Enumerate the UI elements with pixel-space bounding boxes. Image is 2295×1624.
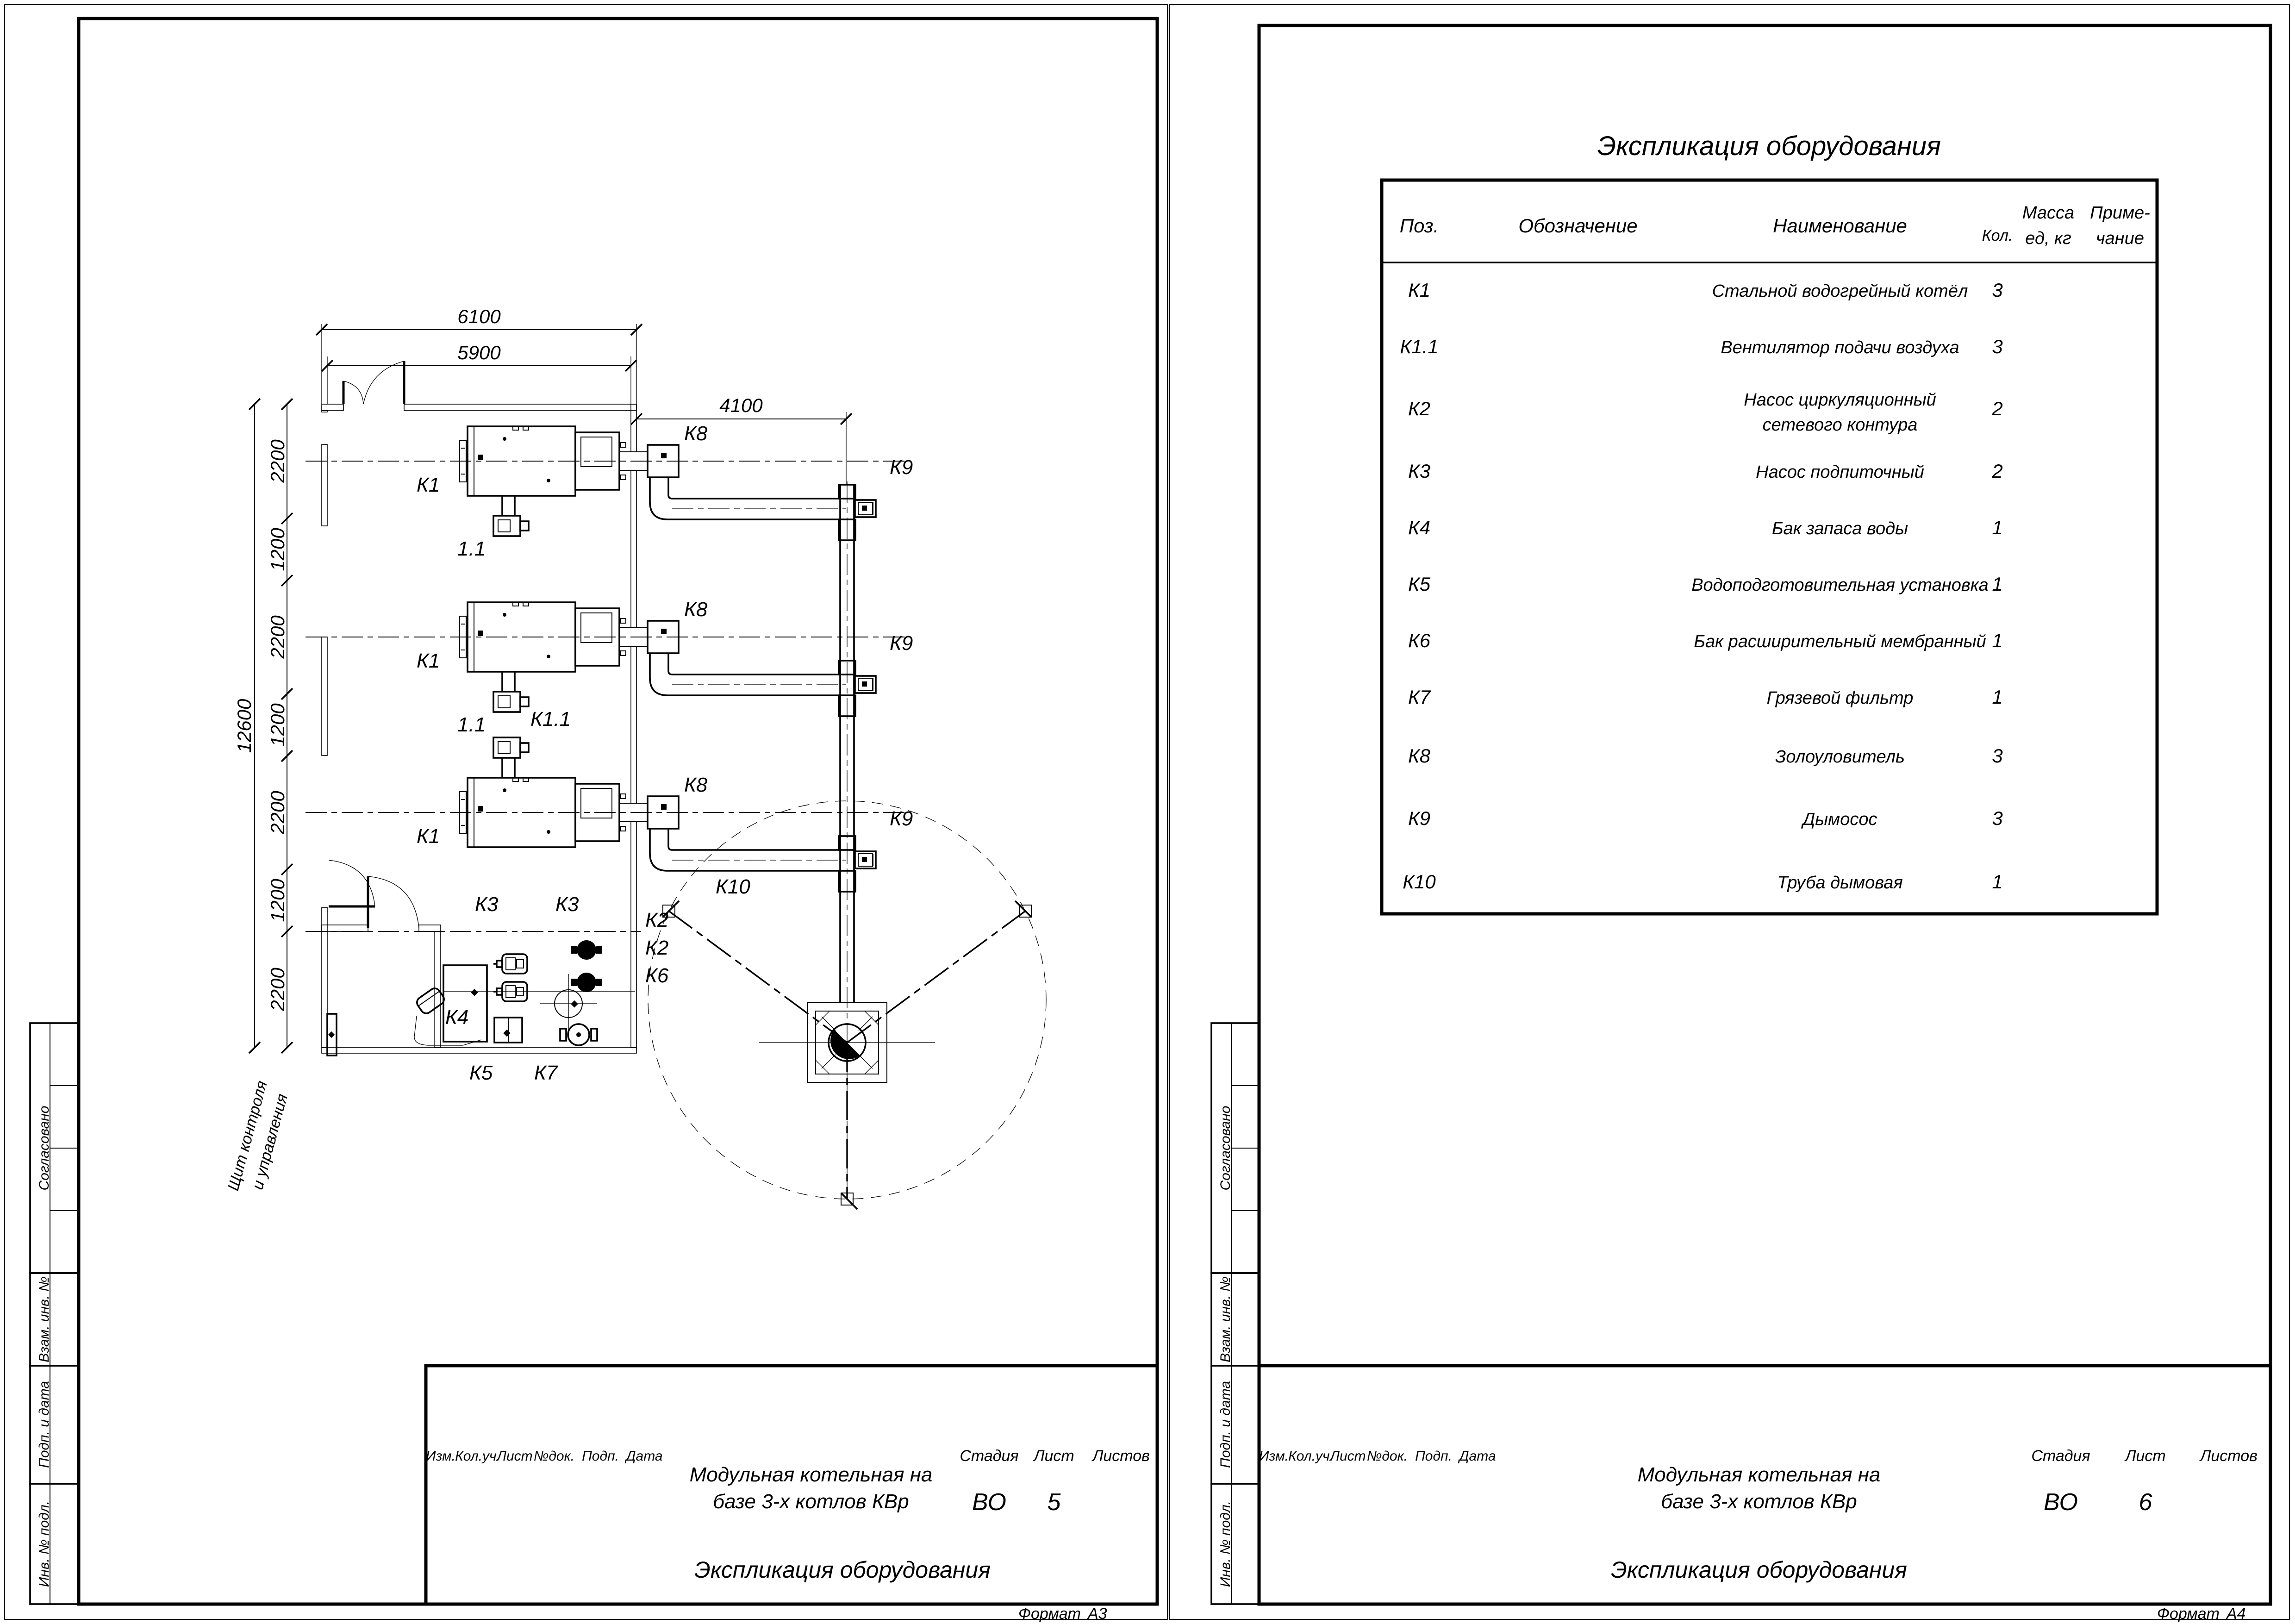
cell-qty: 3 — [1992, 336, 2002, 357]
sidebar-podp-label-r: Подп. и дата — [1218, 1381, 1233, 1468]
label-k9-3: К9 — [890, 807, 913, 830]
table-row-k1-1: К1.1 Вентилятор подачи воздуха 3 — [1400, 336, 2002, 357]
dim-4100: 4100 — [719, 394, 763, 416]
sheet-label-right: Лист — [2124, 1447, 2166, 1465]
cell-qty: 1 — [1992, 573, 2002, 595]
table-row-k4: К4 Бак запаса воды 1 — [1408, 517, 2003, 538]
format-label-right: Формат — [2157, 1605, 2220, 1623]
label-k4: К4 — [445, 1006, 468, 1029]
dim-c2: 2200 — [267, 615, 288, 659]
cell-qty: 1 — [1992, 871, 2002, 893]
sidebar-approved-label-r: Согласовано — [1218, 1106, 1233, 1191]
table-row-k9: К9 Дымосос 3 — [1408, 807, 2003, 829]
label-k1-1: К1 — [417, 474, 440, 496]
col-header-qty: Кол. — [1982, 227, 2013, 244]
dim-5900: 5900 — [457, 342, 501, 363]
cell-pos: К1.1 — [1400, 336, 1438, 357]
rev-podp-right: Подп. — [1415, 1449, 1452, 1464]
cell-pos: К10 — [1403, 871, 1436, 893]
dim-12600: 12600 — [233, 699, 255, 753]
dim-top: 6100 5900 4100 — [316, 306, 852, 484]
sidebar-right-sheet: Согласовано Взам. инв. № Подп. и дата Ин… — [1211, 1023, 1259, 1604]
label-k8-1: К8 — [684, 422, 708, 445]
sidebar-left-sheet: Согласовано Взам. инв. № Подп. и дата Ин… — [30, 1023, 78, 1604]
cell-name: Грязевой фильтр — [1767, 688, 1914, 708]
aux-equipment — [327, 940, 602, 1056]
sink — [415, 986, 446, 1015]
rev-data-right: Дата — [1458, 1449, 1496, 1464]
sheet-a3-plan: Согласовано Взам. инв. № Подп. и дата Ин… — [5, 5, 1167, 1623]
cell-name: Вентилятор подачи воздуха — [1721, 338, 1959, 357]
label-k9-2: К9 — [890, 632, 913, 655]
cell-name-2: сетевого контура — [1763, 415, 1918, 435]
label-k2-2: К2 — [645, 937, 668, 959]
pump-k2-1 — [571, 940, 602, 960]
cell-name: Дымосос — [1801, 810, 1877, 829]
col-header-mass-2: ед, кг — [2025, 229, 2071, 248]
cell-name: Насос циркуляционный — [1744, 390, 1936, 410]
cell-qty: 3 — [1992, 807, 2002, 829]
cell-pos: К3 — [1408, 460, 1430, 482]
cell-name: Насос подпиточный — [1756, 462, 1924, 482]
sidebar-vzam-label-r: Взам. инв. № — [1218, 1276, 1233, 1362]
cell-name: Водоподготовительная установка — [1691, 575, 1989, 595]
floor-plan: 6100 5900 4100 2200 1200 2200 1200 2200 — [225, 306, 1046, 1209]
dim-c0: 2200 — [267, 439, 288, 483]
rev-list-left: Лист — [496, 1449, 532, 1464]
sheet-number-right: 6 — [2139, 1489, 2152, 1516]
title-block-left: Изм. Кол.уч. Лист №док. Подп. Дата Модул… — [426, 1366, 1157, 1623]
cell-qty: 1 — [1992, 517, 2002, 538]
rev-ndok-left: №док. — [534, 1449, 574, 1464]
sheet-label-left: Лист — [1033, 1447, 1074, 1465]
stage-label-left: Стадия — [960, 1447, 1018, 1465]
cell-qty: 2 — [1991, 398, 2002, 419]
table-row-k3: К3 Насос подпиточный 2 — [1408, 460, 2003, 482]
sidebar-approved-label: Согласовано — [37, 1106, 52, 1191]
doc-title-left: Экспликация оборудования — [694, 1557, 991, 1583]
cell-qty: 3 — [1992, 745, 2002, 767]
cell-pos: К8 — [1408, 745, 1431, 767]
cell-qty: 1 — [1992, 686, 2002, 708]
rev-data-left: Дата — [624, 1449, 662, 1464]
stage-value-right: ВО — [2044, 1489, 2078, 1516]
label-k2-1: К2 — [645, 909, 668, 931]
sheet-number-left: 5 — [1048, 1489, 1061, 1516]
filter-k7 — [560, 1024, 597, 1045]
stage-label-right: Стадия — [2031, 1447, 2090, 1465]
format-label-left: Формат — [1018, 1605, 1081, 1623]
label-k1-3: К1 — [417, 825, 440, 848]
cell-qty: 3 — [1992, 279, 2002, 301]
sidebar-inv-label-r: Инв. № подл. — [1218, 1501, 1233, 1587]
format-value-right: А4 — [2226, 1605, 2246, 1623]
dim-c3: 1200 — [267, 703, 288, 747]
dim-c1: 1200 — [267, 528, 288, 571]
label-k6: К6 — [645, 964, 669, 987]
cell-name: Бак запаса воды — [1772, 519, 1908, 538]
cell-qty: 1 — [1992, 630, 2002, 651]
cell-pos: К5 — [1408, 573, 1431, 595]
rev-izm-left: Изм. — [426, 1449, 455, 1464]
tank-k4 — [443, 965, 487, 1042]
cell-pos: К4 — [1408, 517, 1430, 538]
project-title-2-right: базе 3-х котлов КВр — [1661, 1490, 1857, 1513]
col-header-note-1: Приме- — [2090, 203, 2150, 223]
doors — [329, 361, 419, 928]
col-header-name: Наименование — [1773, 215, 1907, 237]
label-k8-2: К8 — [684, 598, 708, 621]
rev-koluch-right: Кол.уч. — [1288, 1449, 1334, 1464]
equipment-table: Экспликация оборудования Поз. Обозначени… — [1382, 131, 2157, 914]
table-row-k10: К10 Труба дымовая 1 — [1403, 871, 2002, 893]
cell-name: Труба дымовая — [1777, 873, 1902, 893]
rev-list-right: Лист — [1329, 1449, 1366, 1464]
label-k3-1: К3 — [475, 893, 499, 916]
cell-pos: К7 — [1408, 686, 1431, 708]
label-k8-3: К8 — [684, 774, 708, 796]
pump-k3-1 — [493, 954, 527, 974]
col-header-note-2: чание — [2096, 229, 2144, 248]
sheet-a4-table: Согласовано Взам. инв. № Подп. и дата Ин… — [1169, 5, 2289, 1623]
cell-pos: К2 — [1408, 398, 1430, 419]
sidebar-inv-label: Инв. № подл. — [37, 1501, 52, 1587]
label-k9-1: К9 — [890, 456, 913, 479]
format-value-left: А3 — [1087, 1605, 1107, 1623]
cell-pos: К6 — [1408, 630, 1431, 651]
table-row-k1: К1 Стальной водогрейный котёл 3 — [1408, 279, 2003, 301]
sidebar-podp-label: Подп. и дата — [37, 1381, 52, 1468]
drawing-sheets: Согласовано Взам. инв. № Подп. и дата Ин… — [0, 0, 2295, 1624]
table-title: Экспликация оборудования — [1597, 131, 1941, 161]
label-k5: К5 — [469, 1062, 493, 1084]
table-row-k6: К6 Бак расширительный мембранный 1 — [1408, 630, 2003, 651]
cell-pos: К1 — [1408, 279, 1430, 301]
sheets-label-right: Листов — [2199, 1447, 2258, 1465]
doc-title-right: Экспликация оборудования — [1611, 1557, 1907, 1583]
title-block-right: Изм. Кол.уч. Лист №док. Подп. Дата Модул… — [1259, 1366, 2270, 1623]
stage-value-left: ВО — [972, 1489, 1006, 1516]
label-11-1: 1.1 — [457, 537, 486, 560]
pump-k2-2 — [571, 973, 602, 992]
label-11-2: 1.1 — [457, 713, 486, 736]
dim-6100: 6100 — [457, 306, 501, 327]
label-k7: К7 — [534, 1062, 558, 1084]
rev-podp-left: Подп. — [582, 1449, 619, 1464]
cell-name: Золоуловитель — [1775, 747, 1905, 767]
project-title-1-right: Модульная котельная на — [1638, 1463, 1881, 1486]
dim-c6: 2200 — [267, 968, 288, 1012]
cell-name: Стальной водогрейный котёл — [1712, 281, 1968, 301]
dim-c4: 2200 — [267, 791, 288, 835]
cell-qty: 2 — [1991, 460, 2002, 482]
table-row-k2: К2 Насос циркуляционный сетевого контура… — [1408, 390, 2003, 435]
sidebar-vzam-label: Взам. инв. № — [37, 1276, 52, 1362]
table-row-k8: К8 Золоуловитель 3 — [1408, 745, 2003, 767]
rev-ndok-right: №док. — [1367, 1449, 1408, 1464]
table-row-k7: К7 Грязевой фильтр 1 — [1408, 686, 2003, 708]
dim-c5: 1200 — [267, 879, 288, 922]
col-header-pos: Поз. — [1400, 215, 1439, 237]
cell-name: Бак расширительный мембранный — [1694, 632, 1986, 651]
col-header-designation: Обозначение — [1518, 215, 1637, 237]
label-k11: К1.1 — [530, 708, 571, 731]
label-k10: К10 — [716, 875, 750, 898]
label-k3-2: К3 — [555, 893, 579, 916]
table-row-k5: К5 Водоподготовительная установка 1 — [1408, 573, 2003, 595]
sheets-label-left: Листов — [1091, 1447, 1150, 1465]
project-title-2-left: базе 3-х котлов КВр — [713, 1490, 909, 1513]
col-header-mass-1: Масса — [2022, 203, 2074, 223]
rev-koluch-left: Кол.уч. — [455, 1449, 500, 1464]
cell-pos: К9 — [1408, 807, 1430, 829]
project-title-1-left: Модульная котельная на — [690, 1463, 933, 1486]
rev-izm-right: Изм. — [1259, 1449, 1289, 1464]
dim-left-chain: 2200 1200 2200 1200 2200 1200 2200 12600 — [233, 399, 324, 1053]
label-k1-2: К1 — [417, 650, 440, 672]
